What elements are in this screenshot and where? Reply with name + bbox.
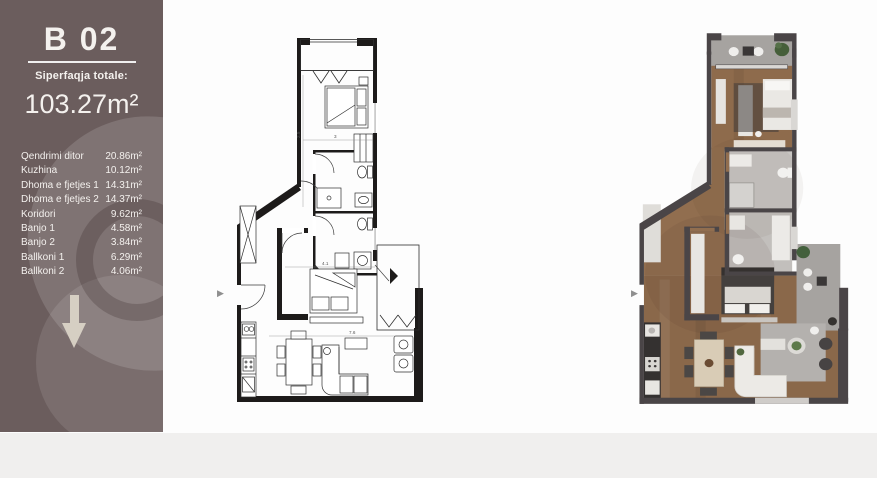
room-list: Qendrimi ditor20.86m² Kuzhina10.12m² Dho… [0, 150, 163, 280]
room-name: Dhoma e fjetjes 1 [21, 179, 99, 193]
bed-1-icon [325, 77, 373, 162]
room-area: 14.37m² [105, 193, 142, 207]
room-row: Dhoma e fjetjes 214.37m² [21, 193, 142, 207]
room-area: 10.12m² [105, 164, 142, 178]
room-name: Banjo 2 [21, 236, 55, 250]
room-row: Koridori9.62m² [21, 208, 142, 222]
total-area-label: Siperfaqja totale: [0, 70, 163, 82]
brochure-page: B 02 Siperfaqja totale: 103.27m² Qendrim… [0, 0, 877, 478]
room-name: Kuzhina [21, 164, 57, 178]
dim-label: 4.1 [322, 261, 329, 266]
room-row: Banjo 14.58m² [21, 222, 142, 236]
down-arrow-icon [61, 295, 87, 349]
kitchen-icon [241, 322, 256, 397]
room-row: Ballkoni 16.29m² [21, 251, 142, 265]
entry-arrow-icon: ▶ [217, 289, 224, 298]
room-row: Kuzhina10.12m² [21, 164, 142, 178]
room-row: Qendrimi ditor20.86m² [21, 150, 142, 164]
room-area: 9.62m² [111, 208, 142, 222]
room-row: Ballkoni 24.06m² [21, 265, 142, 279]
room-name: Koridori [21, 208, 55, 222]
room-area: 4.58m² [111, 222, 142, 236]
room-area: 14.31m² [105, 179, 142, 193]
sidebar: B 02 Siperfaqja totale: 103.27m² Qendrim… [0, 0, 163, 432]
sofa-icon [322, 338, 368, 395]
room-area: 6.29m² [111, 251, 142, 265]
technical-floorplan: 3 2.5 4.1 7.6 [225, 25, 430, 410]
room-name: Qendrimi ditor [21, 150, 84, 164]
rendered-floorplan [626, 20, 856, 412]
unit-title: B 02 [0, 22, 163, 56]
divider [28, 61, 136, 63]
dim-label: 2.5 [296, 131, 301, 138]
room-area: 4.06m² [111, 265, 142, 279]
entry-arrow-icon: ▶ [631, 289, 638, 298]
room-name: Ballkoni 1 [21, 251, 64, 265]
balcony-1 [301, 40, 374, 84]
room-name: Dhoma e fjetjes 2 [21, 193, 99, 207]
room-row: Banjo 23.84m² [21, 236, 142, 250]
room-row: Dhoma e fjetjes 114.31m² [21, 179, 142, 193]
room-area: 20.86m² [105, 150, 142, 164]
dining-table-icon [277, 331, 321, 394]
room-area: 3.84m² [111, 236, 142, 250]
bed-2-icon [310, 269, 363, 323]
room-name: Ballkoni 2 [21, 265, 64, 279]
armchairs-icon [394, 336, 413, 372]
closet-icon [240, 206, 256, 263]
bathroom-1-fixtures [317, 166, 373, 208]
sidebar-header: B 02 Siperfaqja totale: 103.27m² [0, 22, 163, 120]
total-area-value: 103.27m² [0, 89, 163, 120]
dim-label: 7.6 [349, 330, 356, 335]
bathroom-2-fixtures [315, 218, 373, 275]
dim-label: 3 [334, 134, 337, 139]
balcony-2 [377, 245, 419, 330]
room-name: Banjo 1 [21, 222, 55, 236]
door-arrow-icon [390, 268, 398, 284]
footer-band [0, 433, 877, 478]
